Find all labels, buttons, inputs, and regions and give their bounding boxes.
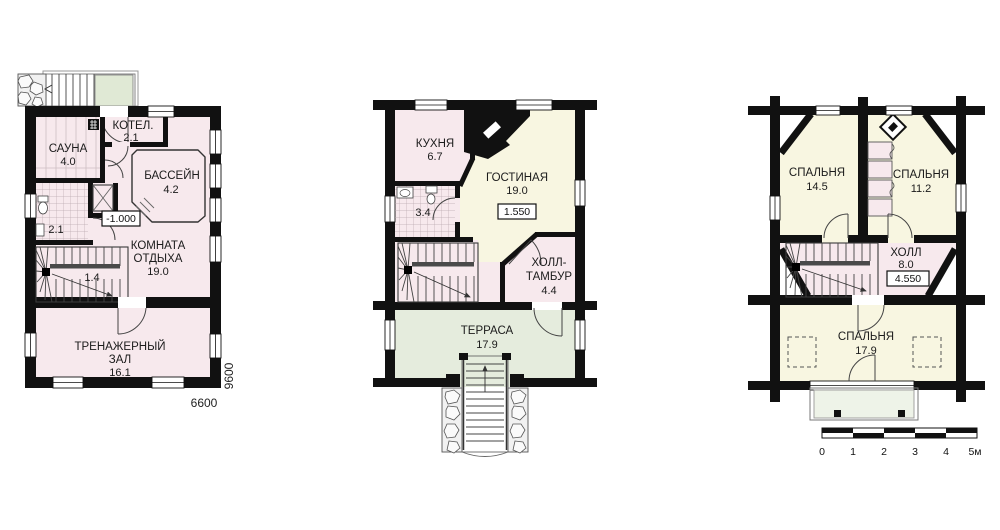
room-area-bathroom2: 3.4 [415, 207, 430, 219]
room-area-gym: 16.1 [109, 367, 130, 379]
room-label-gym-1: ТРЕНАЖЕРНЫЙ [74, 340, 165, 353]
scale-bar: 0 1 2 3 4 5м [819, 428, 981, 458]
room-label-lounge-2: ОТДЫХА [134, 253, 183, 265]
room-label-hall-tambour-1: ХОЛЛ- [531, 257, 566, 269]
room-label-gym-2: ЗАЛ [109, 354, 131, 366]
room-label-hall-tambour-2: ТАМБУР [526, 271, 572, 283]
scale-tick-1: 1 [850, 446, 856, 458]
elevation-value-ground: 1.550 [504, 206, 530, 218]
room-label-bedroom1: СПАЛЬНЯ [789, 167, 845, 179]
scale-tick-0: 0 [819, 446, 825, 458]
room-area-hall-tambour: 4.4 [541, 285, 556, 297]
room-label-sauna: САУНА [49, 143, 88, 155]
stairs-handrail [50, 264, 120, 269]
room-area-living: 19.0 [506, 185, 527, 197]
toilet-icon [39, 202, 48, 214]
floorplan-sheet: САУНА 4.0 КОТЕЛ. 2.1 БАССЕЙН 4.2 2.1 -1.… [0, 0, 1000, 530]
room-label-lounge-1: КОМНАТА [131, 240, 186, 252]
plan-basement: САУНА 4.0 КОТЕЛ. 2.1 БАССЕЙН 4.2 2.1 -1.… [18, 71, 236, 410]
plan-ground: КУХНЯ 6.7 ГОСТИНАЯ 19.0 1.550 3.4 ХОЛЛ- … [373, 100, 597, 457]
plan-attic: СПАЛЬНЯ 14.5 СПАЛЬНЯ 11.2 ХОЛЛ 8.0 4.550… [748, 96, 985, 420]
room-area-bathroom1: 2.1 [48, 224, 63, 236]
room-label-bedroom2: СПАЛЬНЯ [893, 169, 949, 181]
attic-bedroom3-floor [780, 305, 956, 381]
room-label-living: ГОСТИНАЯ [486, 172, 548, 184]
room-area-pool: 4.2 [163, 184, 178, 196]
sink-icon [36, 224, 44, 236]
room-label-pool: БАССЕЙН [144, 169, 200, 182]
room-label-bedroom3: СПАЛЬНЯ [838, 331, 894, 343]
elevation-value-basement: -1.000 [106, 213, 136, 225]
sauna-stove-icon [88, 119, 99, 130]
room-label-hall: ХОЛЛ [890, 247, 921, 259]
basement-entry-stair [18, 71, 138, 107]
toilet-icon [426, 186, 437, 193]
room-area-bedroom3: 17.9 [855, 345, 876, 357]
room-area-bedroom2: 11.2 [911, 183, 932, 195]
floorplans-drawing: САУНА 4.0 КОТЕЛ. 2.1 БАССЕЙН 4.2 2.1 -1.… [0, 0, 1000, 530]
scale-tick-3: 3 [912, 446, 918, 458]
room-area-sauna: 4.0 [60, 156, 75, 168]
elevation-value-attic: 4.550 [895, 273, 921, 285]
stairs-area-value: 1.4 [84, 272, 99, 284]
scale-tick-5: 5м [968, 446, 981, 458]
room-area-kitchen: 6.7 [427, 151, 442, 163]
scale-tick-2: 2 [881, 446, 887, 458]
balcony [810, 388, 918, 420]
room-area-lounge: 19.0 [147, 266, 168, 278]
room-label-kitchen: КУХНЯ [416, 138, 454, 150]
dimension-width: 6600 [191, 396, 218, 410]
room-area-bedroom1: 14.5 [806, 181, 827, 193]
room-area-boiler: 2.1 [123, 132, 138, 144]
entry-porch-pad [95, 75, 133, 106]
room-label-boiler: КОТЕЛ. [113, 120, 154, 132]
scale-tick-4: 4 [943, 446, 949, 458]
room-area-terrace: 17.9 [476, 339, 497, 351]
room-label-terrace: ТЕРРАСА [461, 325, 514, 337]
room-area-hall: 8.0 [898, 259, 913, 271]
dimension-height: 9600 [222, 362, 236, 389]
